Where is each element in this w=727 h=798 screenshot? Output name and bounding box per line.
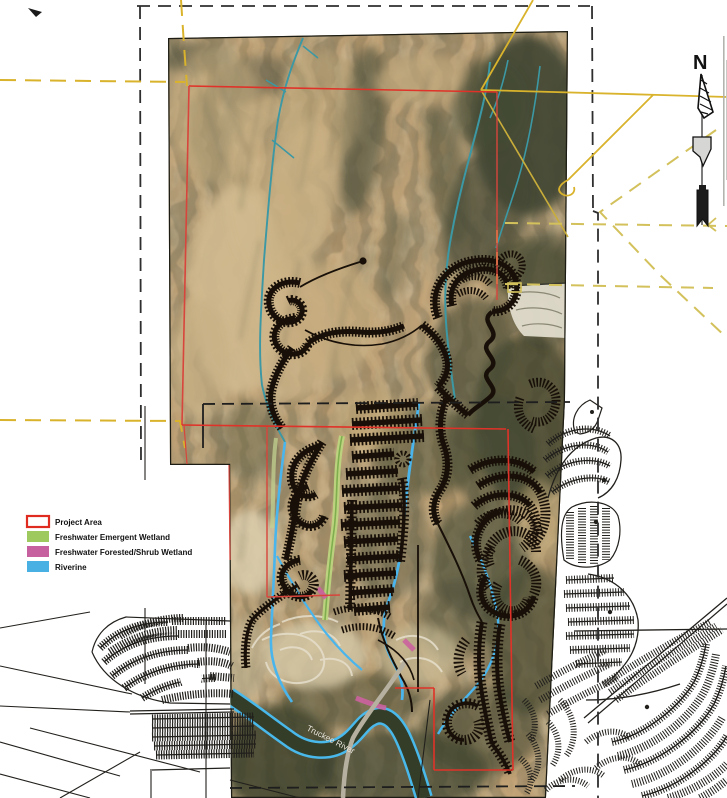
svg-text:Project Area: Project Area bbox=[55, 518, 102, 527]
svg-text:N: N bbox=[693, 52, 707, 74]
svg-text:Riverine: Riverine bbox=[55, 563, 87, 572]
svg-text:Freshwater Emergent Wetland: Freshwater Emergent Wetland bbox=[55, 533, 170, 542]
svg-text:Freshwater Forested/Shrub Wetl: Freshwater Forested/Shrub Wetland bbox=[55, 548, 192, 557]
